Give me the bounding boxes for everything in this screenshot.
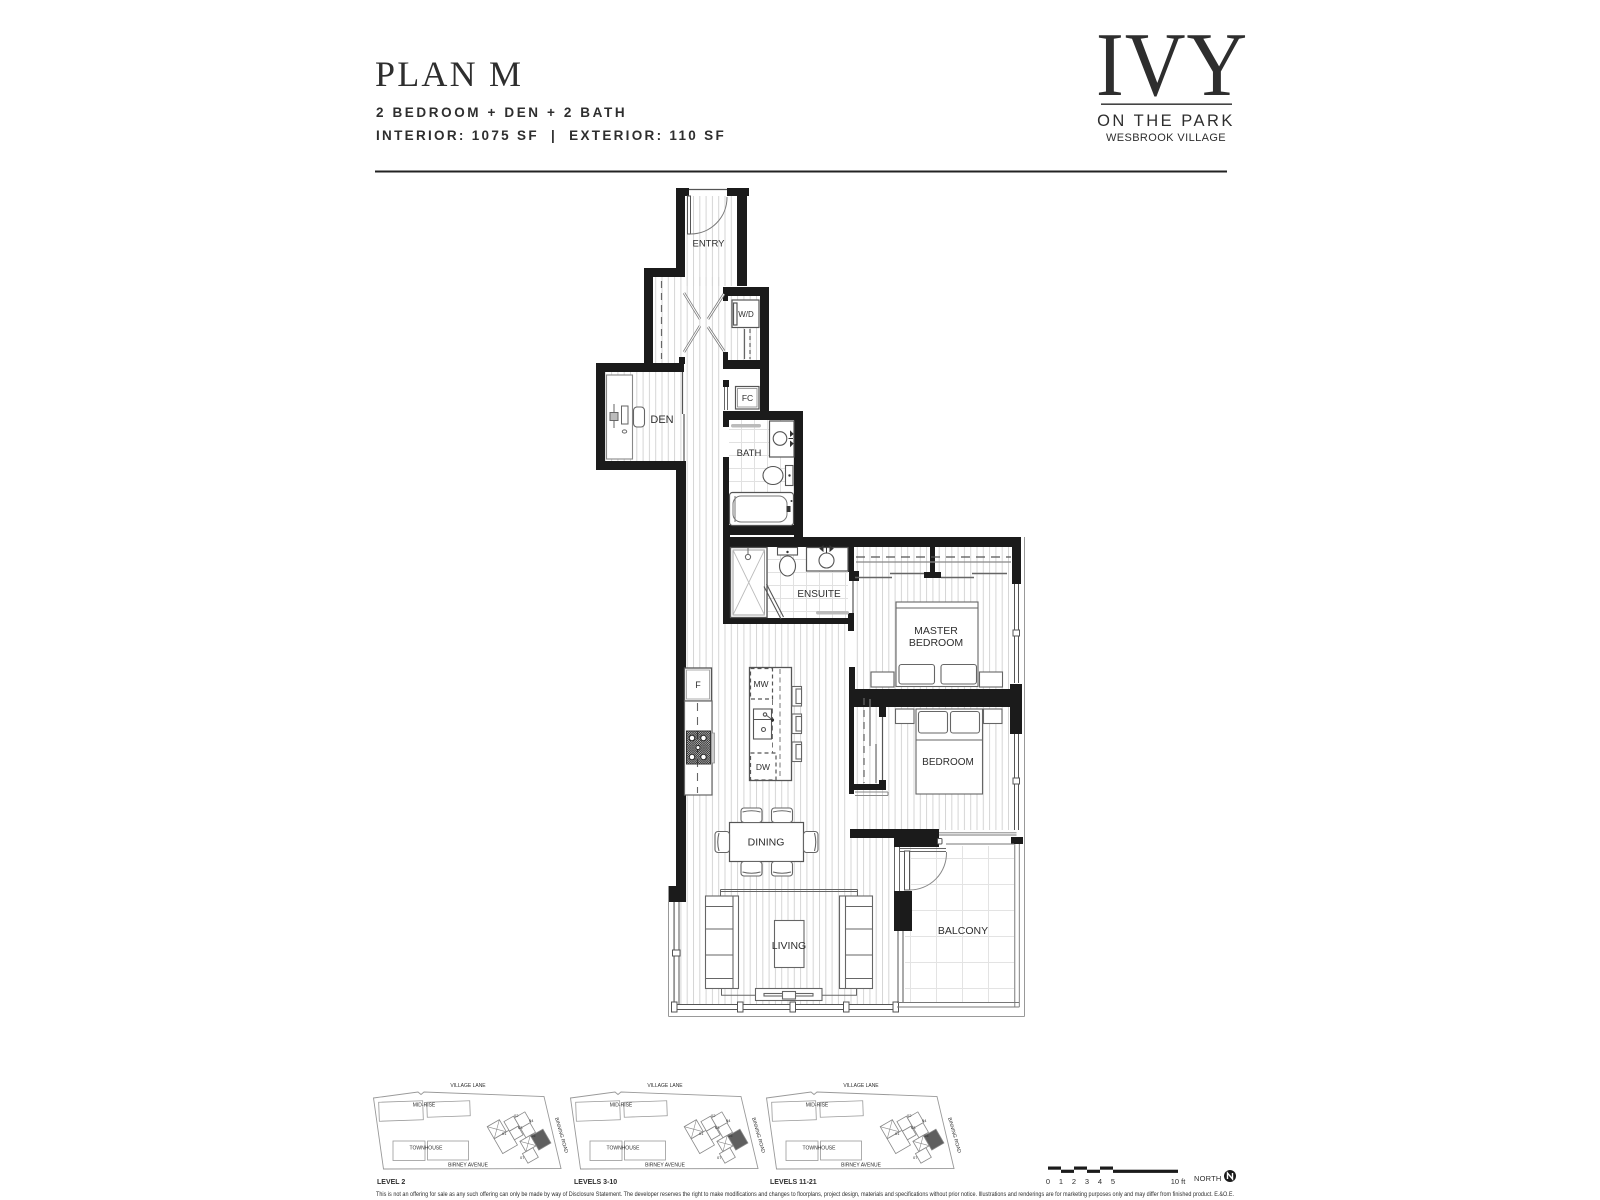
svg-text:2: 2 <box>1072 1177 1076 1186</box>
svg-text:LIVING: LIVING <box>772 940 806 952</box>
svg-text:PLAN M: PLAN M <box>375 54 523 94</box>
svg-text:W/D: W/D <box>738 310 754 319</box>
svg-text:4: 4 <box>1098 1177 1102 1186</box>
svg-text:BEDROOM: BEDROOM <box>909 637 963 649</box>
svg-text:F: F <box>695 680 701 690</box>
svg-text:FC: FC <box>742 393 753 403</box>
svg-text:LEVELS 3-10: LEVELS 3-10 <box>574 1179 617 1186</box>
svg-text:ON THE PARK: ON THE PARK <box>1097 112 1235 130</box>
svg-text:DW: DW <box>756 762 770 772</box>
svg-text:WESBROOK VILLAGE: WESBROOK VILLAGE <box>1106 132 1226 144</box>
svg-text:DEN: DEN <box>650 414 673 426</box>
svg-text:This is not an offering for sa: This is not an offering for sale as any … <box>376 1191 1234 1198</box>
svg-text:INTERIOR: 1075 SF | EXTERIOR: INTERIOR: 1075 SF | EXTERIOR: 110 SF <box>376 128 726 143</box>
svg-text:0: 0 <box>1046 1177 1050 1186</box>
svg-text:10 ft: 10 ft <box>1171 1177 1187 1186</box>
svg-text:ENTRY: ENTRY <box>692 239 725 250</box>
svg-text:1: 1 <box>1059 1177 1063 1186</box>
svg-text:BALCONY: BALCONY <box>938 925 988 937</box>
svg-text:DINING: DINING <box>748 837 785 849</box>
svg-text:5: 5 <box>1111 1177 1115 1186</box>
svg-text:LEVEL 2: LEVEL 2 <box>377 1179 405 1186</box>
svg-text:3: 3 <box>1085 1177 1089 1186</box>
svg-text:ENSUITE: ENSUITE <box>797 589 841 600</box>
svg-text:BATH: BATH <box>737 448 762 459</box>
svg-text:BEDROOM: BEDROOM <box>922 757 974 768</box>
svg-text:NORTH: NORTH <box>1194 1174 1222 1183</box>
svg-text:2 BEDROOM + DEN + 2 BATH: 2 BEDROOM + DEN + 2 BATH <box>376 105 627 120</box>
svg-text:LEVELS 11-21: LEVELS 11-21 <box>770 1179 817 1186</box>
svg-text:MASTER: MASTER <box>914 625 958 637</box>
svg-text:IVY: IVY <box>1096 14 1248 115</box>
svg-text:MW: MW <box>753 679 768 689</box>
